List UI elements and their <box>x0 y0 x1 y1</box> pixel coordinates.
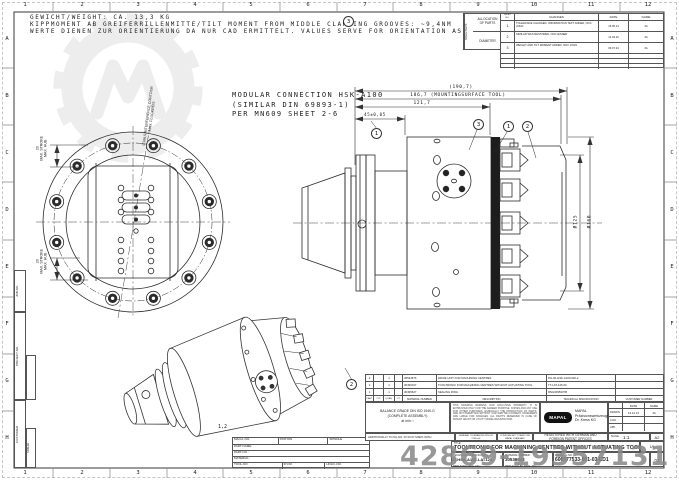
sig-name-header: NAME <box>645 403 663 408</box>
revision-date: 14.03.20 <box>599 32 629 42</box>
grid-col-label: 1 <box>17 470 33 476</box>
patent-notice: REGISTERED WITH GERMAN AND FOREIGN PATEN… <box>533 433 608 441</box>
revision-change: TOLERANCE CHANGED, INFORMATION TEXT ADDE… <box>515 21 599 31</box>
dim-dia160: Ø160 <box>588 206 593 238</box>
mapal-logo-text: MAPAL <box>549 415 567 420</box>
grid-col-label: 10 <box>526 2 542 8</box>
grid-col-label: 3 <box>130 470 146 476</box>
dim-stroke-bottom: 20 MAX. STROKE MAX. HUB <box>36 237 49 285</box>
grid-col-label: 3 <box>130 2 146 8</box>
part-pos: 1 <box>366 389 374 395</box>
sig-chn-label: CHN. <box>609 417 623 423</box>
revision-header-date: DATE <box>599 14 629 20</box>
balloon-1: 1 <box>503 121 514 132</box>
part-material-number: 30495627 <box>403 389 437 395</box>
dim-mounting: 186,7 (MOUNTINGSURFACE TOOL) <box>378 93 538 98</box>
dim-stroke-top: 20 MAX. STROKE MAX. HUB <box>36 124 49 172</box>
grid-row-label: B <box>666 93 678 99</box>
company-cell: MAPAL MAPAL Präzisionswerkzeuge Dr. Kres… <box>540 402 608 433</box>
parts-row: 2 1 30496107 TOOLTRONIC FOR MACHINING CE… <box>366 382 663 389</box>
grid-row-label: B <box>1 93 13 99</box>
allocation-title: ALLOCATION OF PARTS <box>473 14 502 32</box>
spindle-label: SPINDLE <box>328 438 369 444</box>
revision-name: JG <box>629 21 663 31</box>
revision-row: 1 TOLERANCE CHANGED, INFORMATION TEXT AD… <box>501 21 663 32</box>
part-material-number: 30496107 <box>403 382 437 388</box>
grid-col-label: 6 <box>300 2 316 8</box>
part-qty: 1 <box>384 389 395 395</box>
grid-col-label: 2 <box>74 2 90 8</box>
part-material-number: 30534676 <box>403 375 437 381</box>
gear-watermark-icon <box>59 19 197 157</box>
grid-col-label: 9 <box>470 2 486 8</box>
grid-row-label: G <box>1 378 13 384</box>
scale-value: 1:1 <box>623 435 629 440</box>
grid-col-label: 4 <box>187 2 203 8</box>
machine-block: MACH.-NO. STATION SPINDLE PART-NAME: PAR… <box>232 437 370 468</box>
spare-parts-label: SPARE PARTS <box>464 14 473 49</box>
revision-row: 2 SIMILAR WAS RESTORED, NOC EISNER 14.03… <box>501 32 663 43</box>
project-no-field: PROJECT-NO. <box>14 312 26 400</box>
grid-col-label: 8 <box>413 2 429 8</box>
grid-col-label: 5 <box>243 2 259 8</box>
grid-row-label: A <box>666 36 678 42</box>
revision-change: WEIGHT AND TILT MOMENT ADDED, NOC JOHN <box>515 43 599 53</box>
margin-subfield <box>26 355 36 400</box>
grid-col-label: 6 <box>300 470 316 476</box>
grid-row-label: D <box>666 207 678 213</box>
revision-row: 3 WEIGHT AND TILT MOMENT ADDED, NOC JOHN… <box>501 43 663 54</box>
hold-no-label: HOLD.-NO. <box>325 463 369 469</box>
grid-row-label: F <box>1 321 13 327</box>
revision-table: INDEX NO. CHANGES DATE NAME 1 TOLERANCE … <box>500 13 664 68</box>
property-disclaimer: THIS DRAWING REMAINS OUR EXCLUSIVE PROPE… <box>450 402 540 433</box>
signature-table: DATE NAME DRAWN 16.12.13 JG CHN. APP. <box>608 402 664 433</box>
grid-row-label: H <box>1 435 13 441</box>
station-label: STATION <box>279 438 329 444</box>
job-no-field: JOB-NO. <box>14 270 26 312</box>
revision-header-changes: CHANGES <box>515 14 599 20</box>
grid-col-label: 5 <box>243 470 259 476</box>
parts-row: 1 1 30495627 SEALING RING RNG6095307B <box>366 389 663 396</box>
part-description: DRIVE UNIT FOR MACHINING CENTRES <box>437 375 547 381</box>
revision-no: 3 <box>501 43 515 53</box>
parts-row: 3 1 30534676 DRIVE UNIT FOR MACHINING CE… <box>366 375 663 382</box>
conform-cell: CONFORM NOT STEADY WE MAPAL STANDARD <box>497 433 533 441</box>
iso-part-ref: 1,2 <box>218 424 227 430</box>
additionally-cell: ADDITIONALLY TO KA-NO. 07.03.07 MARK WIT… <box>365 433 455 441</box>
sig-drawn-name: JG <box>645 409 663 416</box>
scale-label: SCALE <box>611 435 619 438</box>
balance-grade-cell: BALANCE GRADE DIN ISO 1940-G (COMPLETE A… <box>365 402 450 433</box>
balloon-2: 2 <box>346 379 357 390</box>
company-name: MAPAL Präzisionswerkzeuge Dr. Kress KG <box>575 409 609 423</box>
part-description: TOOLTRONIC FOR MACHINING CENTRES WITHOUT… <box>437 382 547 388</box>
scale-cell: SCALE 1:1 <box>608 433 650 441</box>
job-no-label: JOB-NO. <box>15 271 25 311</box>
part-tech-spec: RNG6095307B <box>547 389 616 395</box>
grid-row-label: E <box>1 264 13 270</box>
project-no-label: PROJECT-NO. <box>15 313 25 399</box>
grid-col-label: 7 <box>357 470 373 476</box>
part-description: SEALING RING <box>437 389 547 395</box>
sig-date-header: DATE <box>623 403 645 408</box>
grid-col-label: 11 <box>583 2 599 8</box>
diameter-label: DIAMETER <box>473 32 502 49</box>
sig-drawn-date: 16.12.13 <box>623 409 645 416</box>
balloon-3: 3 <box>473 119 484 130</box>
tool-no-label: TOOL-NO. <box>233 463 283 469</box>
grid-row-label: F <box>666 321 678 327</box>
grid-col-label: 7 <box>357 2 373 8</box>
revision-header-index: INDEX NO. <box>501 14 515 20</box>
similar-label: SIMILAR <box>27 429 35 467</box>
grid-col-label: 2 <box>74 470 90 476</box>
sig-drawn-label: DRAWN <box>609 409 623 416</box>
dim-dia125: Ø125 <box>574 206 579 238</box>
dim-body-length: 121,7 <box>392 101 452 106</box>
revision-date: 09.07.24 <box>599 43 629 53</box>
general-tolerances-cell: GENERAL TOLERANCES DIN ISO 2768-mK EDGES… <box>455 433 497 441</box>
customer-field: CUSTOMER <box>14 400 26 468</box>
grid-row-label: D <box>1 207 13 213</box>
watermark-number: 42869-19357131 <box>400 441 669 472</box>
grid-row-label: G <box>666 378 678 384</box>
similar-field: SIMILAR <box>26 428 36 468</box>
grid-col-label: 1 <box>17 2 33 8</box>
part-pos: 3 <box>366 375 374 381</box>
revision-no: 2 <box>501 32 515 42</box>
sig-app-label: APP. <box>609 424 623 431</box>
grid-row-label: C <box>666 150 678 156</box>
balloon-3: 3 <box>343 16 354 27</box>
part-tech-spec: DG-60-HSK-A100-920-2 <box>547 375 616 381</box>
revision-date: 15.05.14 <box>599 21 629 31</box>
ip-no-label: IP-NO. <box>283 463 326 469</box>
customer-label: CUSTOMER <box>15 401 25 467</box>
revision-header-name: NAME <box>629 14 663 20</box>
grid-row-label: C <box>1 150 13 156</box>
part-qty: 1 <box>384 375 395 381</box>
part-qty: 1 <box>384 382 395 388</box>
dim-face: 45±0,05 <box>352 112 398 117</box>
parts-list: 3 1 30534676 DRIVE UNIT FOR MACHINING CE… <box>365 374 664 402</box>
part-pos: 2 <box>366 382 374 388</box>
balloon-2: 2 <box>522 121 533 132</box>
grid-col-label: 12 <box>640 2 656 8</box>
revision-name: JG <box>629 43 663 53</box>
part-tech-spec: TT-LAT-125-60 <box>547 382 616 388</box>
dim-overall: (190,7) <box>430 85 492 90</box>
mapal-logo: MAPAL <box>544 412 572 423</box>
allocation-of-parts-box: SPARE PARTS ALLOCATION OF PARTS DIAMETER <box>463 13 503 50</box>
format-cell: A2 <box>650 433 664 441</box>
grid-row-label: E <box>666 264 678 270</box>
grid-col-label: 4 <box>187 470 203 476</box>
revision-name: JG <box>629 32 663 42</box>
grid-row-label: A <box>1 36 13 42</box>
balloon-1: 1 <box>371 128 382 139</box>
revision-no: 1 <box>501 21 515 31</box>
engineering-drawing-sheet: 1 2 3 4 5 6 7 8 9 10 11 12 1 2 3 4 5 6 7… <box>0 0 679 480</box>
revision-change: SIMILAR WAS RESTORED, NOC EISNER <box>515 32 599 42</box>
